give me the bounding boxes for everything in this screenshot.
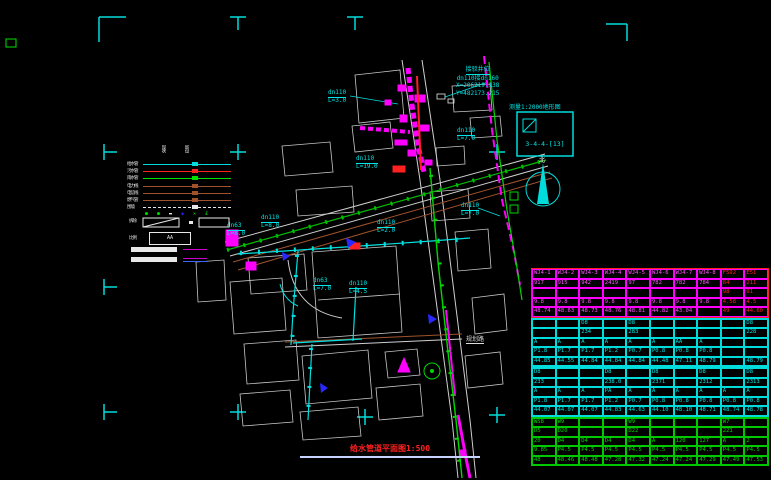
table-cell: D8 — [697, 368, 721, 378]
table-cell: 9.8 — [674, 298, 698, 308]
table-cell: 782 — [674, 279, 698, 289]
table-cell: D4 — [626, 437, 650, 447]
map-label-length: L=7.0 — [457, 135, 475, 143]
legend-line-symbol — [192, 162, 198, 166]
table-cell: P0.8 — [697, 397, 721, 407]
table-cell: 211 — [744, 279, 768, 289]
table-cell: 2312 — [697, 378, 721, 388]
table-cell: 47.29 — [697, 456, 721, 466]
map-label-length: L=8.0 — [261, 222, 279, 230]
table-cell: A — [626, 387, 650, 397]
map-label: dn63L=8.0 — [227, 223, 245, 238]
table-cell: 44.55 — [556, 357, 580, 367]
table-cell — [721, 378, 745, 388]
table-cell: A — [744, 387, 768, 397]
table-cell — [744, 347, 768, 357]
table-cell: A — [650, 338, 674, 348]
table-cell — [721, 338, 745, 348]
table-cell: 2 — [744, 437, 768, 447]
table-cell: 48 — [532, 456, 556, 466]
table-cell: D20 — [556, 427, 580, 437]
table-cell: PA — [603, 387, 627, 397]
legend-magenta-sample-2 — [183, 258, 207, 259]
table-cell: 44.63 — [626, 406, 650, 416]
register-cross — [489, 407, 505, 423]
table-cell: 47.28 — [603, 456, 627, 466]
legend-col-header-new: 新设 — [183, 145, 189, 152]
table-cell: E51 — [744, 269, 768, 279]
table-cell — [579, 368, 603, 378]
table-cell: P4.5 — [650, 446, 674, 456]
table-cell — [626, 378, 650, 388]
table-cell: A — [556, 387, 580, 397]
table-cell: 48.79 — [697, 357, 721, 367]
map-label-text: dn110 — [461, 202, 479, 209]
drawing-title: 给水管道平面图1:500 — [300, 443, 480, 458]
table-cell — [650, 319, 674, 329]
table-cell: P0.8 — [697, 347, 721, 357]
table-cell: P4.5 — [697, 446, 721, 456]
table-cell: 48.48 — [579, 456, 603, 466]
red-main — [417, 76, 421, 170]
legend-line-sample — [143, 200, 231, 201]
table-cell: D8 — [532, 368, 556, 378]
table-cell: D5 — [532, 427, 556, 437]
diagonal-road-south-edge — [230, 166, 548, 256]
table-cell: 20 — [532, 437, 556, 447]
table-cell — [532, 288, 556, 298]
map-label-length: L=19.0 — [356, 163, 378, 171]
cad-viewport[interactable]: { "title": {"text": "给水管道平面图1:500"}, "sc… — [0, 0, 771, 480]
table-cell: P4.5 — [674, 446, 698, 456]
table-cell — [603, 427, 627, 437]
annotation-title: 接驳井位 — [466, 66, 490, 75]
label-leader — [478, 208, 500, 216]
table-group: D8D8D8D8D8233238.0237123122313AAAPAAAAAA… — [531, 367, 769, 417]
table-cell: D8 — [603, 368, 627, 378]
table-cell: P0.7 — [626, 397, 650, 407]
table-cell — [603, 288, 627, 298]
magenta-spur — [360, 128, 410, 132]
well-schedule-table: WJ4-1WJ4-2WJ4-3WJ4-4WJ4-5WJ4-6WJ4-7WJ4-8… — [531, 268, 769, 466]
table-cell: P0.8 — [674, 347, 698, 357]
table-cell — [697, 288, 721, 298]
table-group: D8D8D8234283228AAAAAAAAAP1.8P1.7P1.7P1.2… — [531, 318, 769, 368]
register-cross — [489, 144, 505, 160]
map-label: dn110L=7.0 — [457, 128, 475, 143]
table-cell: D8 — [626, 319, 650, 329]
table-cell — [674, 288, 698, 298]
table-cell — [674, 427, 698, 437]
table-cell: WJ4-7 — [674, 269, 698, 279]
map-label: dn110L=8.0 — [261, 215, 279, 230]
table-cell: 48.46 — [556, 456, 580, 466]
table-cell — [674, 328, 698, 338]
legend-line-symbol — [192, 191, 198, 195]
table-cell: A — [532, 338, 556, 348]
legend-row-label: 电力线 — [127, 183, 142, 189]
table-cell: P4.5 — [603, 446, 627, 456]
table-cell: 915 — [556, 279, 580, 289]
legend-demolish-symbols — [127, 216, 239, 230]
register-cross — [230, 17, 246, 30]
table-cell: D8 — [650, 368, 674, 378]
table-cell: 2419 — [603, 279, 627, 289]
legend-line-symbol — [192, 184, 198, 188]
sheet-number: 3-4-4-[13] — [517, 140, 573, 148]
register-cross — [104, 404, 117, 420]
table-cell: 221 — [721, 427, 745, 437]
table-cell: A — [674, 387, 698, 397]
table-cell: WJ4-4 — [603, 269, 627, 279]
table-cell: P1.7 — [556, 347, 580, 357]
table-cell: 44.60 — [744, 307, 768, 317]
table-cell: P0.8 — [650, 347, 674, 357]
table-cell — [626, 368, 650, 378]
table-cell: 4.5 — [744, 298, 768, 308]
map-label: 规划路 — [466, 337, 484, 344]
connection-symbols — [437, 94, 454, 103]
table-cell: 44.48 — [650, 357, 674, 367]
table-cell: WJ4-5 — [626, 269, 650, 279]
legend-scale-label: 比例 — [129, 235, 136, 241]
map-label-length: L=7.0 — [461, 210, 479, 218]
table-cell — [532, 319, 556, 329]
table-cell — [697, 328, 721, 338]
map-label-length: L=8.0 — [227, 230, 245, 238]
table-cell: A — [579, 338, 603, 348]
table-cell — [650, 427, 674, 437]
legend-col-header-existing: 现状 — [160, 145, 166, 152]
legend-blue-sample — [183, 261, 207, 262]
legend-line-symbol — [192, 198, 198, 202]
table-cell — [603, 328, 627, 338]
table-cell — [674, 319, 698, 329]
table-cell: 228 — [744, 328, 768, 338]
table-cell: 2313 — [744, 378, 768, 388]
legend-line-sample — [143, 193, 231, 194]
annotation-y-coord: Y=482173.215 — [456, 90, 499, 97]
table-cell — [532, 328, 556, 338]
map-label: dn110L=7.0 — [461, 203, 479, 218]
table-cell — [556, 328, 580, 338]
table-cell: 120 — [674, 437, 698, 447]
map-label-text: dn110 — [457, 127, 475, 134]
table-cell: A — [579, 387, 603, 397]
map-label-text: dn110 — [328, 89, 346, 96]
table-cell: 49 — [721, 307, 745, 317]
table-cell — [603, 418, 627, 428]
table-cell: P0.8 — [721, 397, 745, 407]
table-cell: A — [650, 437, 674, 447]
table-cell: A — [650, 387, 674, 397]
table-cell: 47.11 — [674, 357, 698, 367]
map-label-text: 规划路 — [466, 336, 484, 344]
table-cell: P0.8 — [650, 397, 674, 407]
map-label-length: L=2.0 — [377, 227, 395, 235]
annotation-pipe: dn110接dn160 — [457, 75, 499, 82]
table-cell: 97 — [626, 279, 650, 289]
table-cell — [721, 328, 745, 338]
main-road-east-edge — [422, 60, 476, 478]
table-cell — [650, 418, 674, 428]
table-cell: 44.82 — [650, 307, 674, 317]
table-cell: 47.24 — [674, 456, 698, 466]
table-cell — [721, 319, 745, 329]
map-label-text: dn63 — [227, 222, 241, 229]
register-cross — [230, 404, 246, 420]
table-cell: WJ4-6 — [650, 269, 674, 279]
table-cell: 44.84 — [626, 357, 650, 367]
map-label-length: L=4.5 — [349, 288, 367, 296]
map-label: dn63L=7.0 — [313, 278, 331, 293]
legend-scale-bar-2 — [131, 257, 177, 262]
table-cell: A — [532, 387, 556, 397]
register-cross — [104, 279, 117, 295]
table-cell — [603, 319, 627, 329]
table-cell: 48.71 — [697, 406, 721, 416]
table-cell: WJ4-8 — [697, 269, 721, 279]
map-label-text: dn63 — [313, 277, 327, 284]
north-label: 北 — [539, 155, 545, 164]
table-cell: A — [697, 338, 721, 348]
table-cell — [674, 368, 698, 378]
table-cell: 9.8 — [603, 298, 627, 308]
buildings — [196, 70, 507, 440]
map-label-text: dn110 — [261, 214, 279, 221]
table-cell: A — [556, 338, 580, 348]
table-cell: 9.8 — [556, 298, 580, 308]
table-cell: 44.07 — [579, 406, 603, 416]
table-cell — [674, 378, 698, 388]
legend-line-symbol — [192, 169, 198, 173]
table-cell: A — [697, 387, 721, 397]
table-cell: 9.85 — [532, 446, 556, 456]
proposed-pipeline-magenta — [226, 56, 520, 478]
table-cell: 48.73 — [579, 307, 603, 317]
table-cell: P0.7 — [626, 347, 650, 357]
table-cell: D4 — [603, 437, 627, 447]
table-cell: P4.5 — [579, 446, 603, 456]
storm-line — [227, 160, 546, 250]
table-cell: 4.58 — [721, 298, 745, 308]
map-label: dn110L=2.0 — [377, 220, 395, 235]
table-cell: 47.53 — [744, 456, 768, 466]
table-cell: 44.84 — [579, 357, 603, 367]
table-cell — [697, 418, 721, 428]
legend-line-sample — [143, 171, 231, 172]
table-cell: 782 — [650, 279, 674, 289]
table-cell: WJ4-1 — [532, 269, 556, 279]
table-cell: 47.49 — [721, 456, 745, 466]
legend-row-label: 雨水管 — [127, 175, 142, 181]
table-cell: 48.74 — [721, 406, 745, 416]
table-cell — [744, 338, 768, 348]
map-label: dn110L=4.5 — [349, 281, 367, 296]
table-cell: WJ4-2 — [556, 269, 580, 279]
table-cell: P1.7 — [579, 347, 603, 357]
table-cell: 44.84 — [603, 357, 627, 367]
table-cell: 98 — [721, 288, 745, 298]
table-group: WS8W9W9W7D5D20D2222120D4D4D4D4A120127A29… — [531, 417, 769, 467]
register-cross — [347, 17, 363, 30]
table-cell: 91 — [744, 288, 768, 298]
table-cell: 48.76 — [603, 307, 627, 317]
table-cell — [556, 378, 580, 388]
table-cell: 283 — [626, 328, 650, 338]
legend-row: 燃气管 — [127, 197, 239, 204]
table-cell: WJ4-3 — [579, 269, 603, 279]
edge-marker — [6, 39, 16, 47]
table-cell — [579, 427, 603, 437]
table-cell: P1.7 — [579, 397, 603, 407]
table-cell: 44.07 — [532, 406, 556, 416]
connection-annotation: 接驳井位 dn110接dn160 X=206219.138 Y=482173.2… — [456, 66, 499, 97]
table-cell: 233 — [532, 378, 556, 388]
corner-bracket-top-left — [99, 17, 126, 42]
table-cell: 9.8 — [650, 298, 674, 308]
table-cell — [579, 378, 603, 388]
table-cell — [650, 288, 674, 298]
power-line — [233, 172, 550, 262]
legend-row-label: 给水管 — [127, 161, 142, 167]
map-label: dn110L=3.0 — [328, 90, 346, 105]
table-cell — [674, 418, 698, 428]
table-cell: 43.04 — [674, 307, 698, 317]
table-cell: 942 — [579, 279, 603, 289]
table-cell: F592 — [721, 269, 745, 279]
legend-row-label: 燃气管 — [127, 197, 142, 203]
legend-line-sample — [143, 186, 231, 187]
legend-line-sample — [143, 207, 231, 208]
legend-row: 电信线 — [127, 190, 239, 197]
magenta-triangle — [398, 358, 410, 372]
table-cell — [579, 288, 603, 298]
map-label-text: dn110 — [356, 155, 374, 162]
table-cell: D8 — [744, 319, 768, 329]
scale-box-label: 测量1:2000地形图 — [509, 102, 561, 111]
north-needle — [537, 163, 549, 204]
table-cell: P0.8 — [674, 397, 698, 407]
table-cell: D4 — [556, 437, 580, 447]
legend-row-label: 污水管 — [127, 168, 142, 174]
table-cell: 917 — [532, 279, 556, 289]
power-line-south — [285, 334, 462, 342]
table-cell: A — [603, 338, 627, 348]
table-cell: 9.8 — [626, 298, 650, 308]
table-cell: 238.0 — [603, 378, 627, 388]
table-cell — [579, 418, 603, 428]
table-cell — [697, 427, 721, 437]
table-cell — [697, 319, 721, 329]
legend-line-symbol — [192, 176, 198, 180]
table-cell: A — [721, 437, 745, 447]
table-cell: 84 — [721, 279, 745, 289]
table-cell: A — [721, 387, 745, 397]
register-cross — [104, 144, 117, 160]
table-cell: D8 — [744, 368, 768, 378]
table-cell — [556, 288, 580, 298]
table-cell: 9.8 — [579, 298, 603, 308]
legend-row: 电力线 — [127, 183, 239, 190]
table-cell: A — [626, 338, 650, 348]
table-cell: 48.81 — [626, 307, 650, 317]
table-group: WJ4-1WJ4-2WJ4-3WJ4-4WJ4-5WJ4-6WJ4-7WJ4-8… — [531, 268, 769, 318]
map-label-length: L=3.0 — [328, 97, 346, 105]
table-cell: AA — [674, 338, 698, 348]
table-cell — [721, 357, 745, 367]
legend-row: 给水管 — [127, 161, 239, 168]
legend-row-label: 电信线 — [127, 190, 142, 196]
legend-line-symbol — [192, 205, 198, 209]
table-cell: 234 — [579, 328, 603, 338]
table-cell — [721, 368, 745, 378]
legend-magenta-sample — [183, 249, 207, 250]
table-cell — [556, 319, 580, 329]
table-cell — [721, 347, 745, 357]
table-cell: P4.5 — [626, 446, 650, 456]
table-cell: 9.8 — [532, 298, 556, 308]
legend-line-sample — [143, 178, 231, 179]
annotation-x-coord: X=206219.138 — [456, 82, 499, 89]
table-cell: 48.10 — [674, 406, 698, 416]
table-cell: W9 — [556, 418, 580, 428]
legend-scale-bar-1 — [131, 247, 177, 252]
main-road-west-edge — [402, 60, 458, 478]
map-label-length: L=7.0 — [313, 285, 331, 293]
table-cell: P0.8 — [744, 397, 768, 407]
table-cell: D4 — [579, 437, 603, 447]
scale-box — [517, 112, 573, 156]
table-cell: 48.79 — [744, 357, 768, 367]
table-cell — [697, 307, 721, 317]
legend-row: 雨水管 — [127, 175, 239, 182]
map-label-text: dn110 — [349, 280, 367, 287]
map-label-text: dn110 — [377, 219, 395, 226]
table-cell: P1.2 — [603, 397, 627, 407]
corner-bracket-top-right — [606, 24, 627, 41]
table-cell — [556, 368, 580, 378]
table-cell: 44.83 — [603, 406, 627, 416]
table-cell — [650, 328, 674, 338]
water-branch-1 — [291, 251, 298, 345]
table-cell: 47.24 — [650, 456, 674, 466]
legend-aa-box: AA — [149, 232, 191, 245]
table-cell: P4.5 — [556, 446, 580, 456]
map-label: dn110L=19.0 — [356, 156, 378, 171]
blue-valve-symbols — [282, 238, 437, 393]
table-cell: WS8 — [532, 418, 556, 428]
table-cell: W7 — [721, 418, 745, 428]
table-cell: 127 — [697, 437, 721, 447]
table-cell: D22 — [626, 427, 650, 437]
table-cell — [744, 418, 768, 428]
legend-row-label: 围墙 — [127, 204, 142, 210]
table-cell: P1.2 — [603, 347, 627, 357]
table-cell: P4.5 — [721, 446, 745, 456]
table-cell: P1.8 — [532, 397, 556, 407]
table-cell: 48.74 — [532, 307, 556, 317]
table-cell: 44.10 — [650, 406, 674, 416]
legend: 现状 新设 给水管污水管雨水管电力线电信线燃气管围墙 ●●▬◆✕£ 拆除 比例 … — [127, 145, 239, 273]
table-cell: 2371 — [650, 378, 674, 388]
table-cell: P1.8 — [532, 347, 556, 357]
table-cell: 44.07 — [556, 406, 580, 416]
legend-row: 污水管 — [127, 168, 239, 175]
table-cell: 44.85 — [532, 357, 556, 367]
legend-line-sample — [143, 164, 231, 165]
table-cell — [744, 427, 768, 437]
